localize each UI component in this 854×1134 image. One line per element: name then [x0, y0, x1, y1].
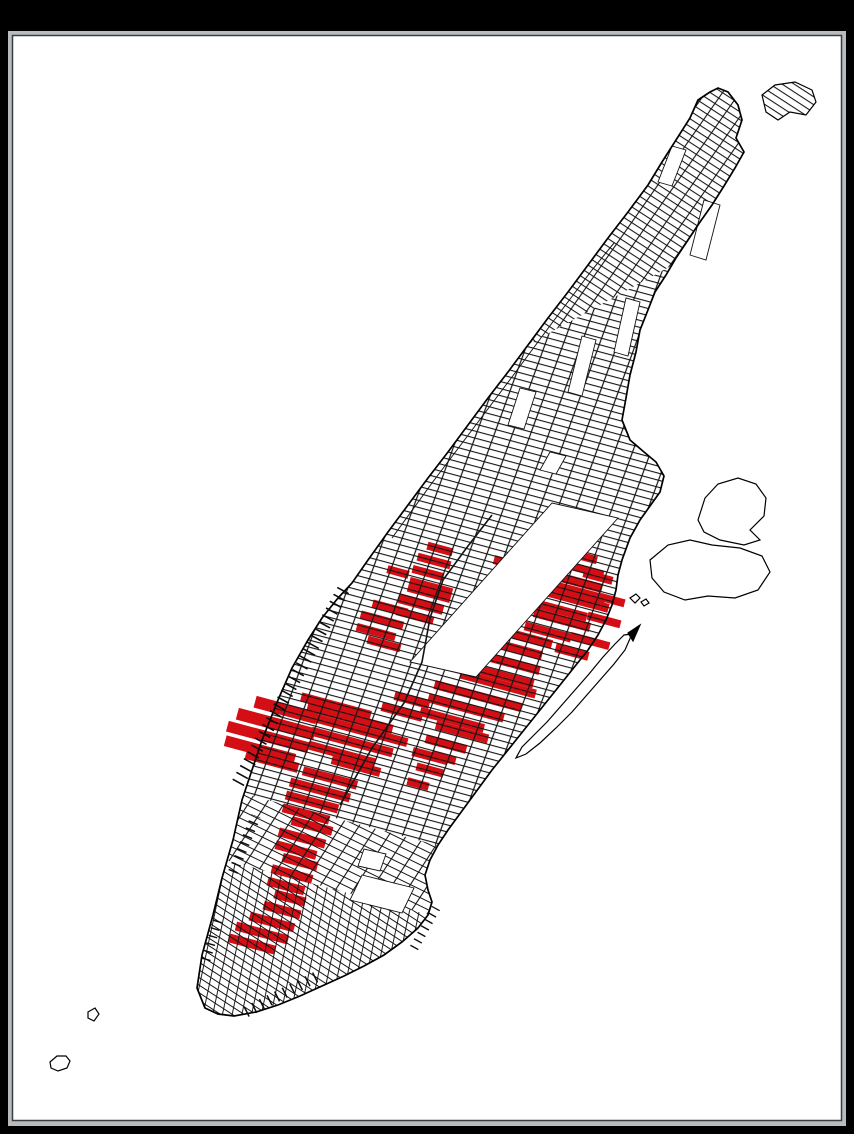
screenshot-root: [0, 0, 854, 1134]
manhattan-map: [0, 0, 854, 1134]
